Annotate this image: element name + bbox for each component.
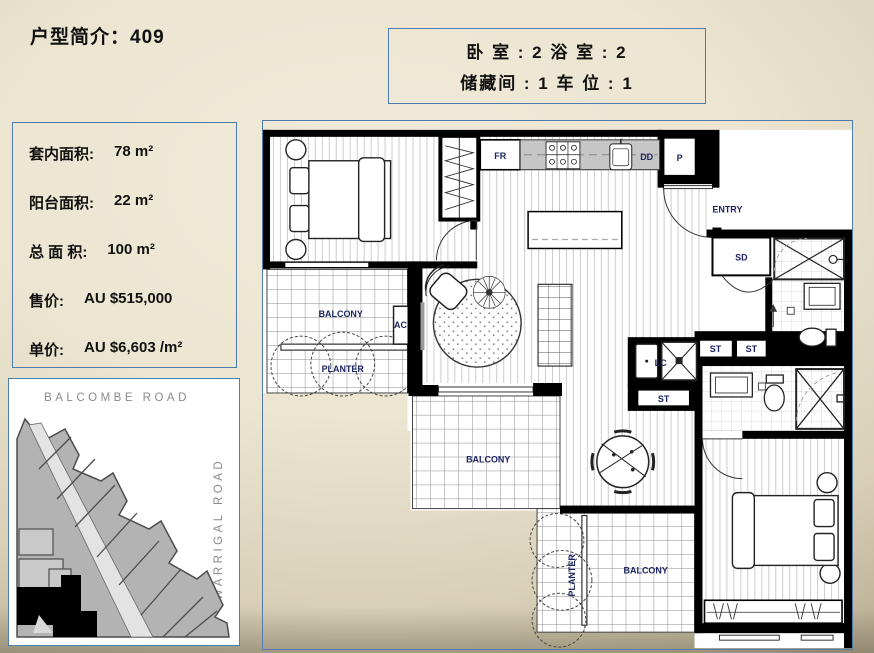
st-label-1: ST xyxy=(710,344,722,354)
sd-label: SD xyxy=(735,252,748,262)
info-row-total-area: 总 面 积: 100 m² xyxy=(29,241,236,290)
balcony-1-label: BALCONY xyxy=(319,309,363,319)
kitchen-island xyxy=(528,212,622,249)
pillow xyxy=(814,500,834,527)
page-title: 户型简介：409 xyxy=(30,22,165,49)
planter-3-label: PLANTER xyxy=(567,554,577,597)
info-panel: 套内面积: 78 m² 阳台面积: 22 m² 总 面 积: 100 m² 售价… xyxy=(12,122,237,368)
summary-line-2: 储藏间 : 1 车 位 : 1 xyxy=(460,69,634,94)
storage-row: ST ST xyxy=(700,340,767,357)
summary-line-1: 卧 室 : 2 浴 室 : 2 xyxy=(466,38,627,63)
nightstand xyxy=(286,239,306,259)
summary-box: 卧 室 : 2 浴 室 : 2 储藏间 : 1 车 位 : 1 xyxy=(388,28,706,104)
shelf-console xyxy=(538,284,572,366)
slide: 户型简介：409 卧 室 : 2 浴 室 : 2 储藏间 : 1 车 位 : 1… xyxy=(0,0,874,653)
toilet xyxy=(799,328,825,346)
info-row-internal-area: 套内面积: 78 m² xyxy=(29,143,236,192)
pillow xyxy=(814,533,834,560)
balcony-2: BALCONY xyxy=(412,396,559,509)
lc-label: LC xyxy=(655,358,667,368)
st-label-2: ST xyxy=(746,344,758,354)
info-label: 阳台面积: xyxy=(29,192,94,213)
cooktop-icon xyxy=(546,142,580,169)
map-road-right-label: WARRIGAL ROAD xyxy=(213,458,225,600)
info-value: 22 m² xyxy=(114,192,153,209)
balcony-1: BALCONY PLANTER AC xyxy=(267,269,415,396)
potted-plant xyxy=(473,276,505,308)
info-label: 总 面 积: xyxy=(29,241,87,262)
blanket-fold xyxy=(359,158,385,242)
floor-plan-box: BALCONY PLANTER AC BALCONY BALCONY xyxy=(262,120,853,650)
pillow xyxy=(290,206,309,232)
ac-label: AC xyxy=(394,320,407,330)
storage-3: ST xyxy=(638,390,690,406)
wardrobe-2 xyxy=(705,600,843,623)
info-value: AU $6,603 /m² xyxy=(84,339,182,356)
toilet-tank xyxy=(766,375,783,383)
site-map: BALCOMBE ROAD WARRIGAL ROAD xyxy=(8,378,240,646)
pantry-label: P xyxy=(677,153,683,163)
dishwasher-label: DD xyxy=(640,152,653,162)
info-label: 单价: xyxy=(29,339,64,360)
info-label: 售价: xyxy=(29,290,64,311)
planter-1-label: PLANTER xyxy=(322,364,365,374)
sliding-door-track xyxy=(420,302,424,350)
balcony-3: BALCONY PLANTER xyxy=(530,509,694,648)
info-value: 100 m² xyxy=(107,241,155,258)
blanket-fold xyxy=(732,493,754,569)
entry-label: ENTRY xyxy=(712,205,742,215)
site-map-drawing: BALCOMBE ROAD WARRIGAL ROAD xyxy=(9,379,239,645)
sink-icon xyxy=(610,139,632,170)
balcony-2-label: BALCONY xyxy=(466,455,510,465)
info-value: AU $515,000 xyxy=(84,290,172,307)
nightstand xyxy=(286,140,306,160)
toilet xyxy=(764,385,784,411)
map-road-top-label: BALCOMBE ROAD xyxy=(44,392,190,404)
nightstand xyxy=(817,473,837,493)
info-row-balcony-area: 阳台面积: 22 m² xyxy=(29,192,236,241)
info-label: 套内面积: xyxy=(29,143,94,164)
nightstand xyxy=(820,563,840,583)
balcony-3-label: BALCONY xyxy=(624,565,668,575)
laundry-closet: LC xyxy=(636,342,697,380)
fridge-label: FR xyxy=(494,151,506,161)
info-row-price: 售价: AU $515,000 xyxy=(29,290,236,339)
info-value: 78 m² xyxy=(114,143,153,160)
st-label-3: ST xyxy=(658,394,670,404)
floor-plan: BALCONY PLANTER AC BALCONY BALCONY xyxy=(263,121,852,649)
wardrobe-1 xyxy=(440,136,478,220)
pillow xyxy=(290,168,309,194)
